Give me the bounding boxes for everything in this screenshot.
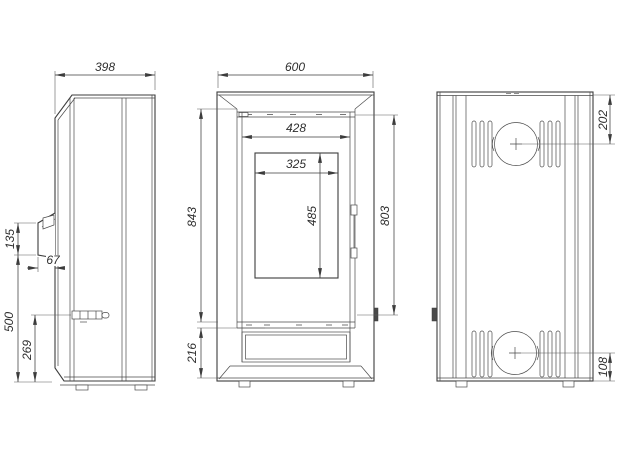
back-foot-right xyxy=(563,381,574,387)
back-view: 202 108 xyxy=(432,92,615,387)
back-side-tab xyxy=(432,308,437,321)
dim-handle-height: 135 xyxy=(3,229,17,249)
dim-glass-height: 485 xyxy=(305,206,319,226)
dim-flue-bottom-offset: 108 xyxy=(596,357,610,377)
front-foot-left xyxy=(239,381,250,387)
side-body-outline xyxy=(55,95,155,390)
back-foot-left xyxy=(456,381,467,387)
side-foot-rear xyxy=(135,385,147,390)
dim-door-height: 803 xyxy=(378,206,392,226)
door-latch xyxy=(239,113,248,117)
dim-door-width: 428 xyxy=(286,121,306,135)
dim-base-height: 216 xyxy=(185,343,199,364)
dim-front-width: 600 xyxy=(285,60,305,74)
front-foot-right xyxy=(343,381,354,387)
dim-flue-top-offset: 202 xyxy=(596,110,610,131)
dim-body-height: 843 xyxy=(185,207,199,227)
technical-drawing: 398 135 67 500 269 xyxy=(0,0,624,460)
side-foot-front xyxy=(76,385,88,390)
front-side-tab xyxy=(374,308,378,321)
dim-handle-elevation: 500 xyxy=(2,312,16,332)
dim-glass-width: 325 xyxy=(286,157,306,171)
dim-damper-elevation: 269 xyxy=(20,340,34,361)
front-view: 600 428 325 485 843 216 803 xyxy=(185,60,398,387)
dim-side-depth: 398 xyxy=(95,60,115,74)
dim-handle-depth: 67 xyxy=(46,253,61,267)
side-view: 398 135 67 500 269 xyxy=(2,60,155,390)
side-door-handle xyxy=(38,213,55,258)
drawing-canvas: 398 135 67 500 269 xyxy=(0,0,624,460)
